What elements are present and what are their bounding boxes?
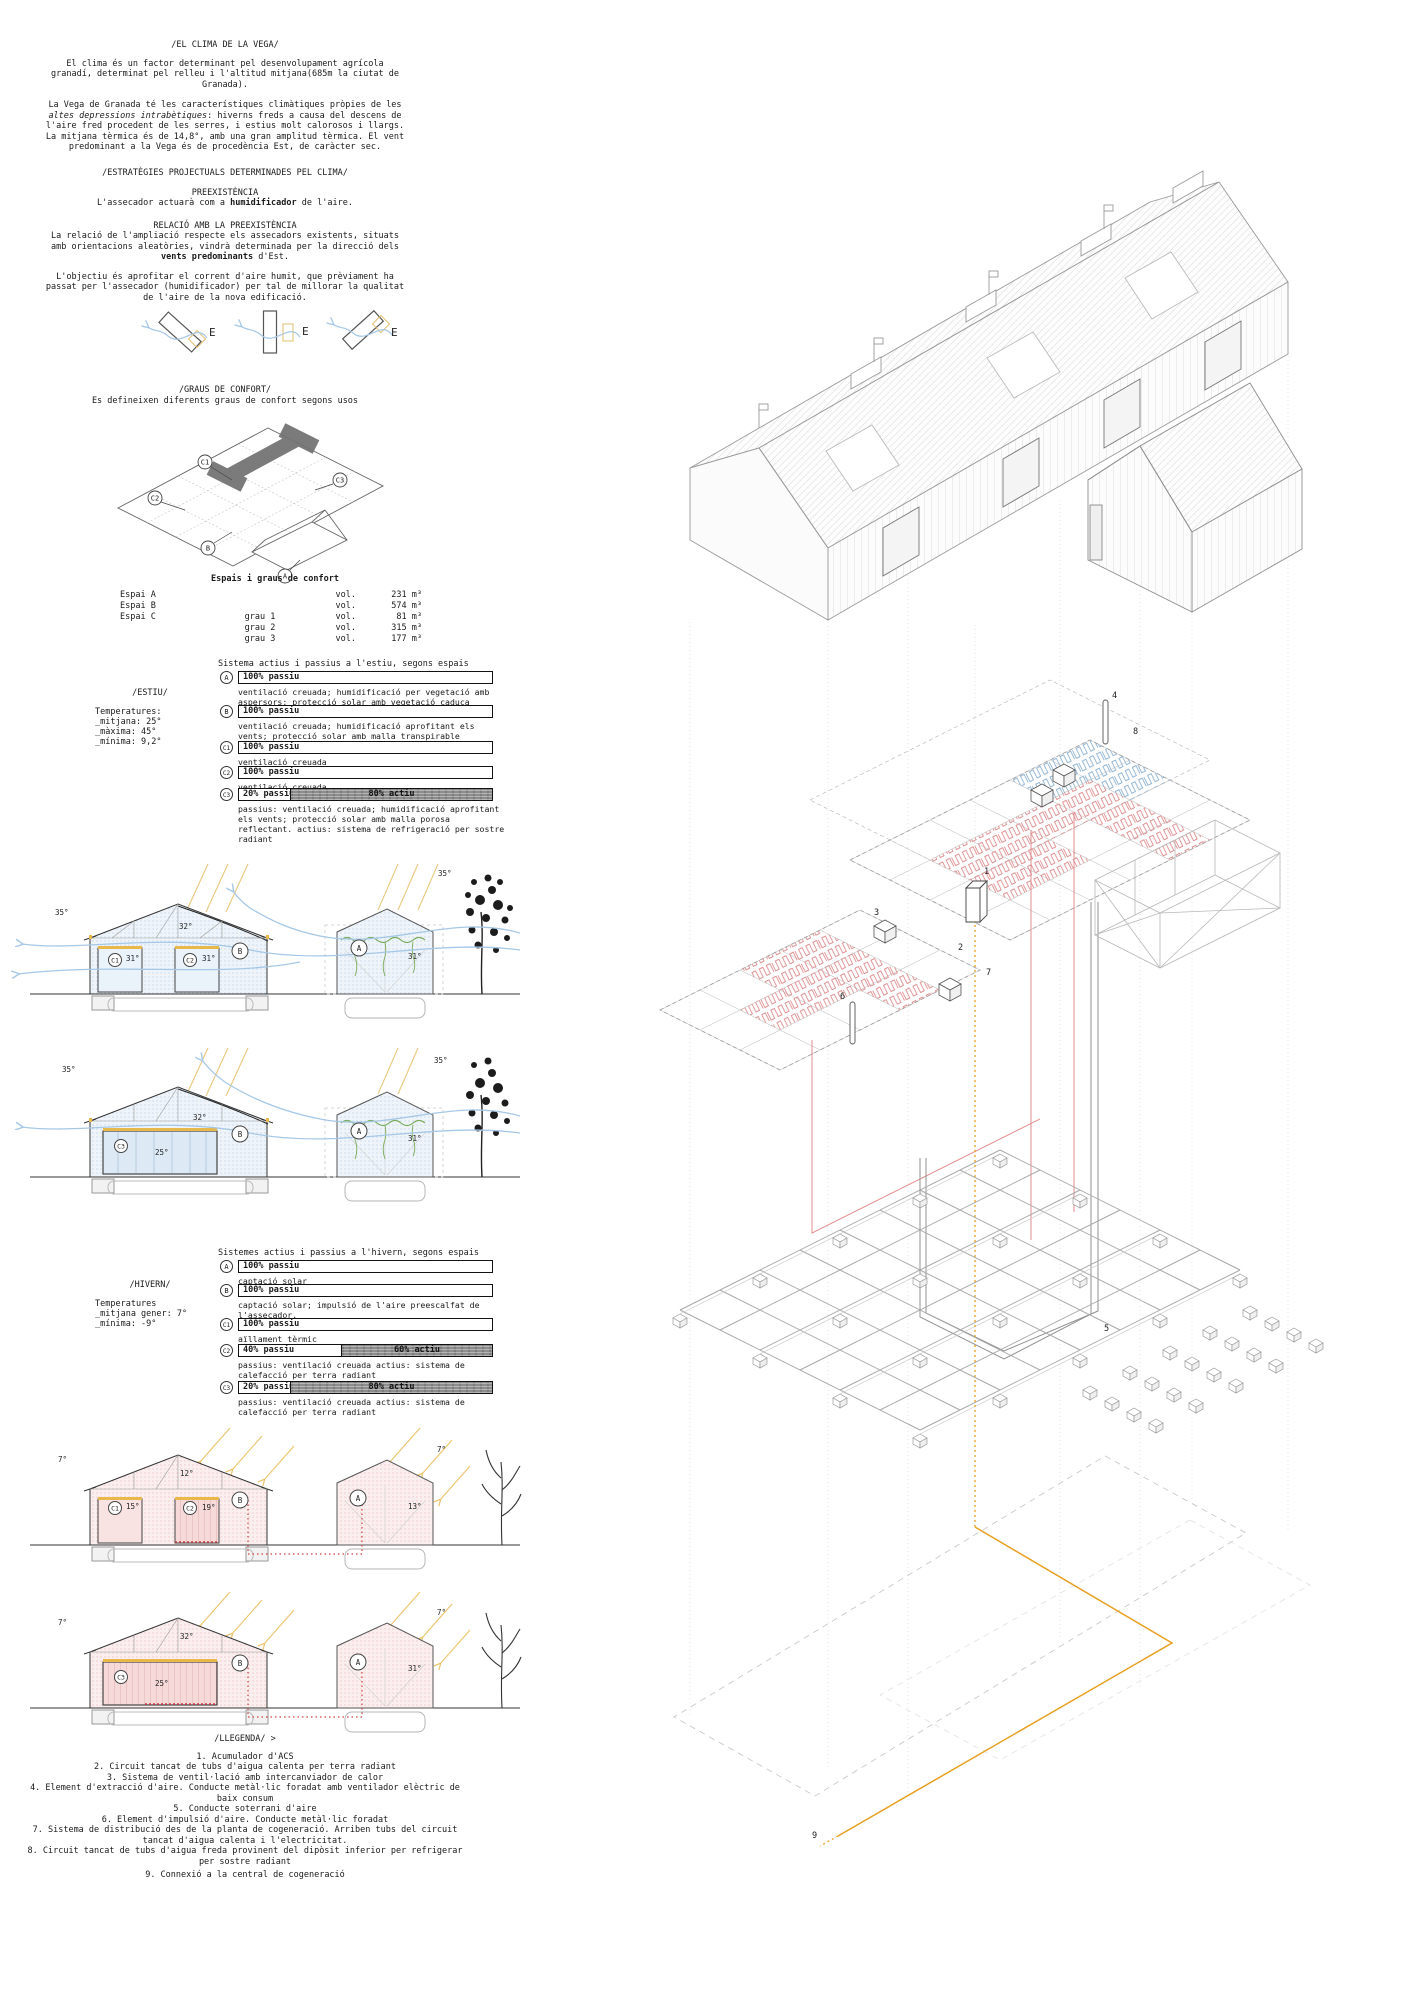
ventilation-unit (874, 920, 896, 943)
callout-7: 7 (986, 968, 991, 978)
acs-accumulator (966, 881, 987, 922)
grid-footings (673, 1154, 1247, 1448)
dryer-door (1090, 505, 1102, 560)
callout-3: 3 (874, 908, 879, 918)
heating-coil-tiles (740, 930, 940, 1030)
structural-floor-grid (680, 1150, 1240, 1434)
callout-9: 9 (812, 1831, 817, 1841)
callout-5: 5 (1104, 1324, 1109, 1334)
callout-8: 8 (1133, 727, 1138, 737)
callout-1: 1 (984, 867, 989, 877)
callout-4: 4 (1112, 691, 1117, 701)
architecture-panel: { "clima": { "title": "/EL CLIMA DE LA V… (0, 0, 1413, 2000)
footing-array (1083, 1306, 1323, 1433)
air-impulsion-duct (850, 1002, 855, 1044)
cogeneration-circuit (820, 925, 1172, 1846)
underground-air-duct (920, 902, 1098, 1359)
exploded-axonometric: 1 2 3 4 5 6 7 8 9 (0, 0, 1413, 2000)
callout-6: 6 (840, 992, 845, 1002)
air-extraction-duct (1103, 700, 1108, 744)
callout-2: 2 (958, 943, 963, 953)
radiant-floor-plate-lower (660, 910, 980, 1070)
ground-plane-dashed (674, 1456, 1310, 1796)
